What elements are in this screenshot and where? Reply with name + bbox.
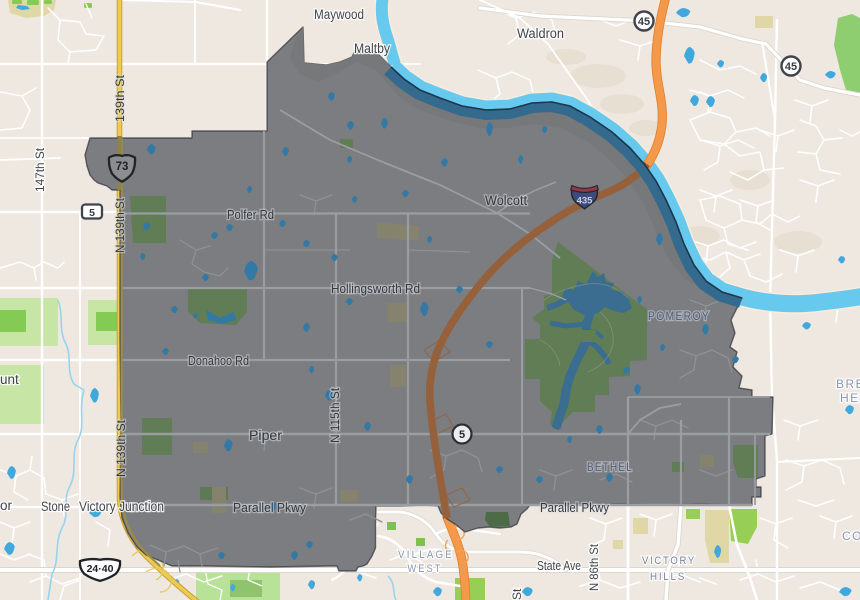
svg-text:Maltby: Maltby <box>354 41 390 56</box>
svg-text:Polfer Rd: Polfer Rd <box>227 208 274 222</box>
svg-text:5: 5 <box>459 429 465 441</box>
svg-text:BRE: BRE <box>836 377 860 391</box>
svg-text:N 86th St: N 86th St <box>587 543 601 591</box>
svg-text:Parallel Pkwy: Parallel Pkwy <box>540 501 610 515</box>
svg-text:Parallel Pkwy: Parallel Pkwy <box>233 501 307 515</box>
svg-text:5: 5 <box>89 207 95 219</box>
svg-text:45: 45 <box>638 16 650 28</box>
svg-text:Maywood: Maywood <box>314 7 364 22</box>
svg-text:Hollingsworth Rd: Hollingsworth Rd <box>331 282 420 296</box>
svg-text:HEI: HEI <box>840 391 860 405</box>
svg-text:45: 45 <box>785 61 797 73</box>
svg-text:147th St: 147th St <box>33 147 47 192</box>
svg-text:435: 435 <box>577 196 594 207</box>
svg-text:State Ave: State Ave <box>537 559 581 573</box>
svg-text:VICTORY: VICTORY <box>642 555 696 567</box>
svg-text:N 139th St: N 139th St <box>113 197 127 253</box>
svg-text:VILLAGE: VILLAGE <box>398 549 454 561</box>
svg-text:Victory Junction: Victory Junction <box>79 499 164 514</box>
svg-text:BETHEL: BETHEL <box>587 460 633 474</box>
svg-text:Waldron: Waldron <box>517 26 564 41</box>
svg-text:POMEROY: POMEROY <box>648 309 710 323</box>
svg-text:N 139th St: N 139th St <box>114 419 128 477</box>
svg-text:COR: COR <box>842 529 860 543</box>
svg-text:St: St <box>510 588 524 600</box>
svg-text:or: or <box>0 498 13 513</box>
svg-text:139th St: 139th St <box>113 74 127 122</box>
svg-text:24·40: 24·40 <box>87 563 114 575</box>
svg-text:73: 73 <box>116 161 129 173</box>
svg-text:Stone: Stone <box>41 499 70 514</box>
svg-text:unt: unt <box>0 372 19 387</box>
svg-text:HILLS: HILLS <box>650 571 686 583</box>
svg-text:N 115th St: N 115th St <box>328 387 342 443</box>
svg-text:WEST: WEST <box>408 563 443 575</box>
svg-text:Wolcott: Wolcott <box>485 193 527 208</box>
svg-text:Donahoo Rd: Donahoo Rd <box>188 354 249 368</box>
svg-text:Piper: Piper <box>249 428 283 443</box>
